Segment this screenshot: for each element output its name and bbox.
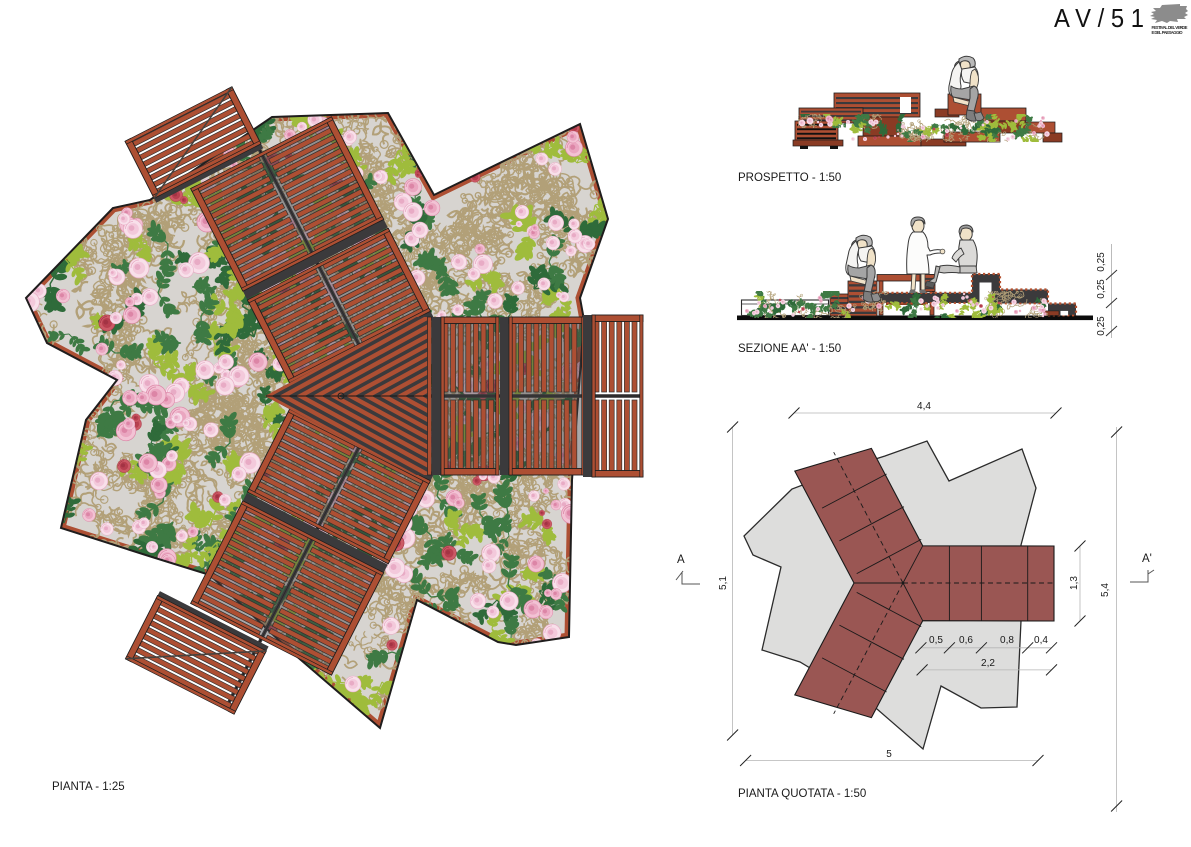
svg-text:0,4: 0,4 bbox=[1034, 635, 1048, 646]
svg-text:4,4: 4,4 bbox=[917, 401, 931, 412]
svg-text:PROSPETTO - 1:50: PROSPETTO - 1:50 bbox=[738, 172, 841, 184]
svg-text:2,2: 2,2 bbox=[981, 658, 995, 669]
svg-text:0,8: 0,8 bbox=[1000, 635, 1014, 646]
svg-text:0,25: 0,25 bbox=[1096, 279, 1107, 299]
svg-text:E DEL PAESAGGIO: E DEL PAESAGGIO bbox=[1152, 30, 1184, 35]
svg-text:A V / 5 1: A V / 5 1 bbox=[1054, 3, 1144, 33]
svg-text:PIANTA QUOTATA - 1:50: PIANTA QUOTATA - 1:50 bbox=[738, 788, 866, 800]
svg-text:0,25: 0,25 bbox=[1096, 252, 1107, 272]
svg-text:5: 5 bbox=[886, 749, 892, 760]
svg-text:0,5: 0,5 bbox=[929, 635, 943, 646]
svg-text:A: A bbox=[677, 554, 685, 566]
svg-text:0,25: 0,25 bbox=[1096, 316, 1107, 336]
svg-text:1,3: 1,3 bbox=[1069, 576, 1080, 590]
svg-text:A': A' bbox=[1142, 553, 1152, 565]
svg-text:5,4: 5,4 bbox=[1100, 583, 1111, 597]
svg-text:SEZIONE AA' - 1:50: SEZIONE AA' - 1:50 bbox=[738, 343, 841, 355]
svg-text:5,1: 5,1 bbox=[718, 576, 729, 590]
svg-text:0,6: 0,6 bbox=[959, 635, 973, 646]
svg-text:PIANTA - 1:25: PIANTA - 1:25 bbox=[52, 781, 125, 793]
